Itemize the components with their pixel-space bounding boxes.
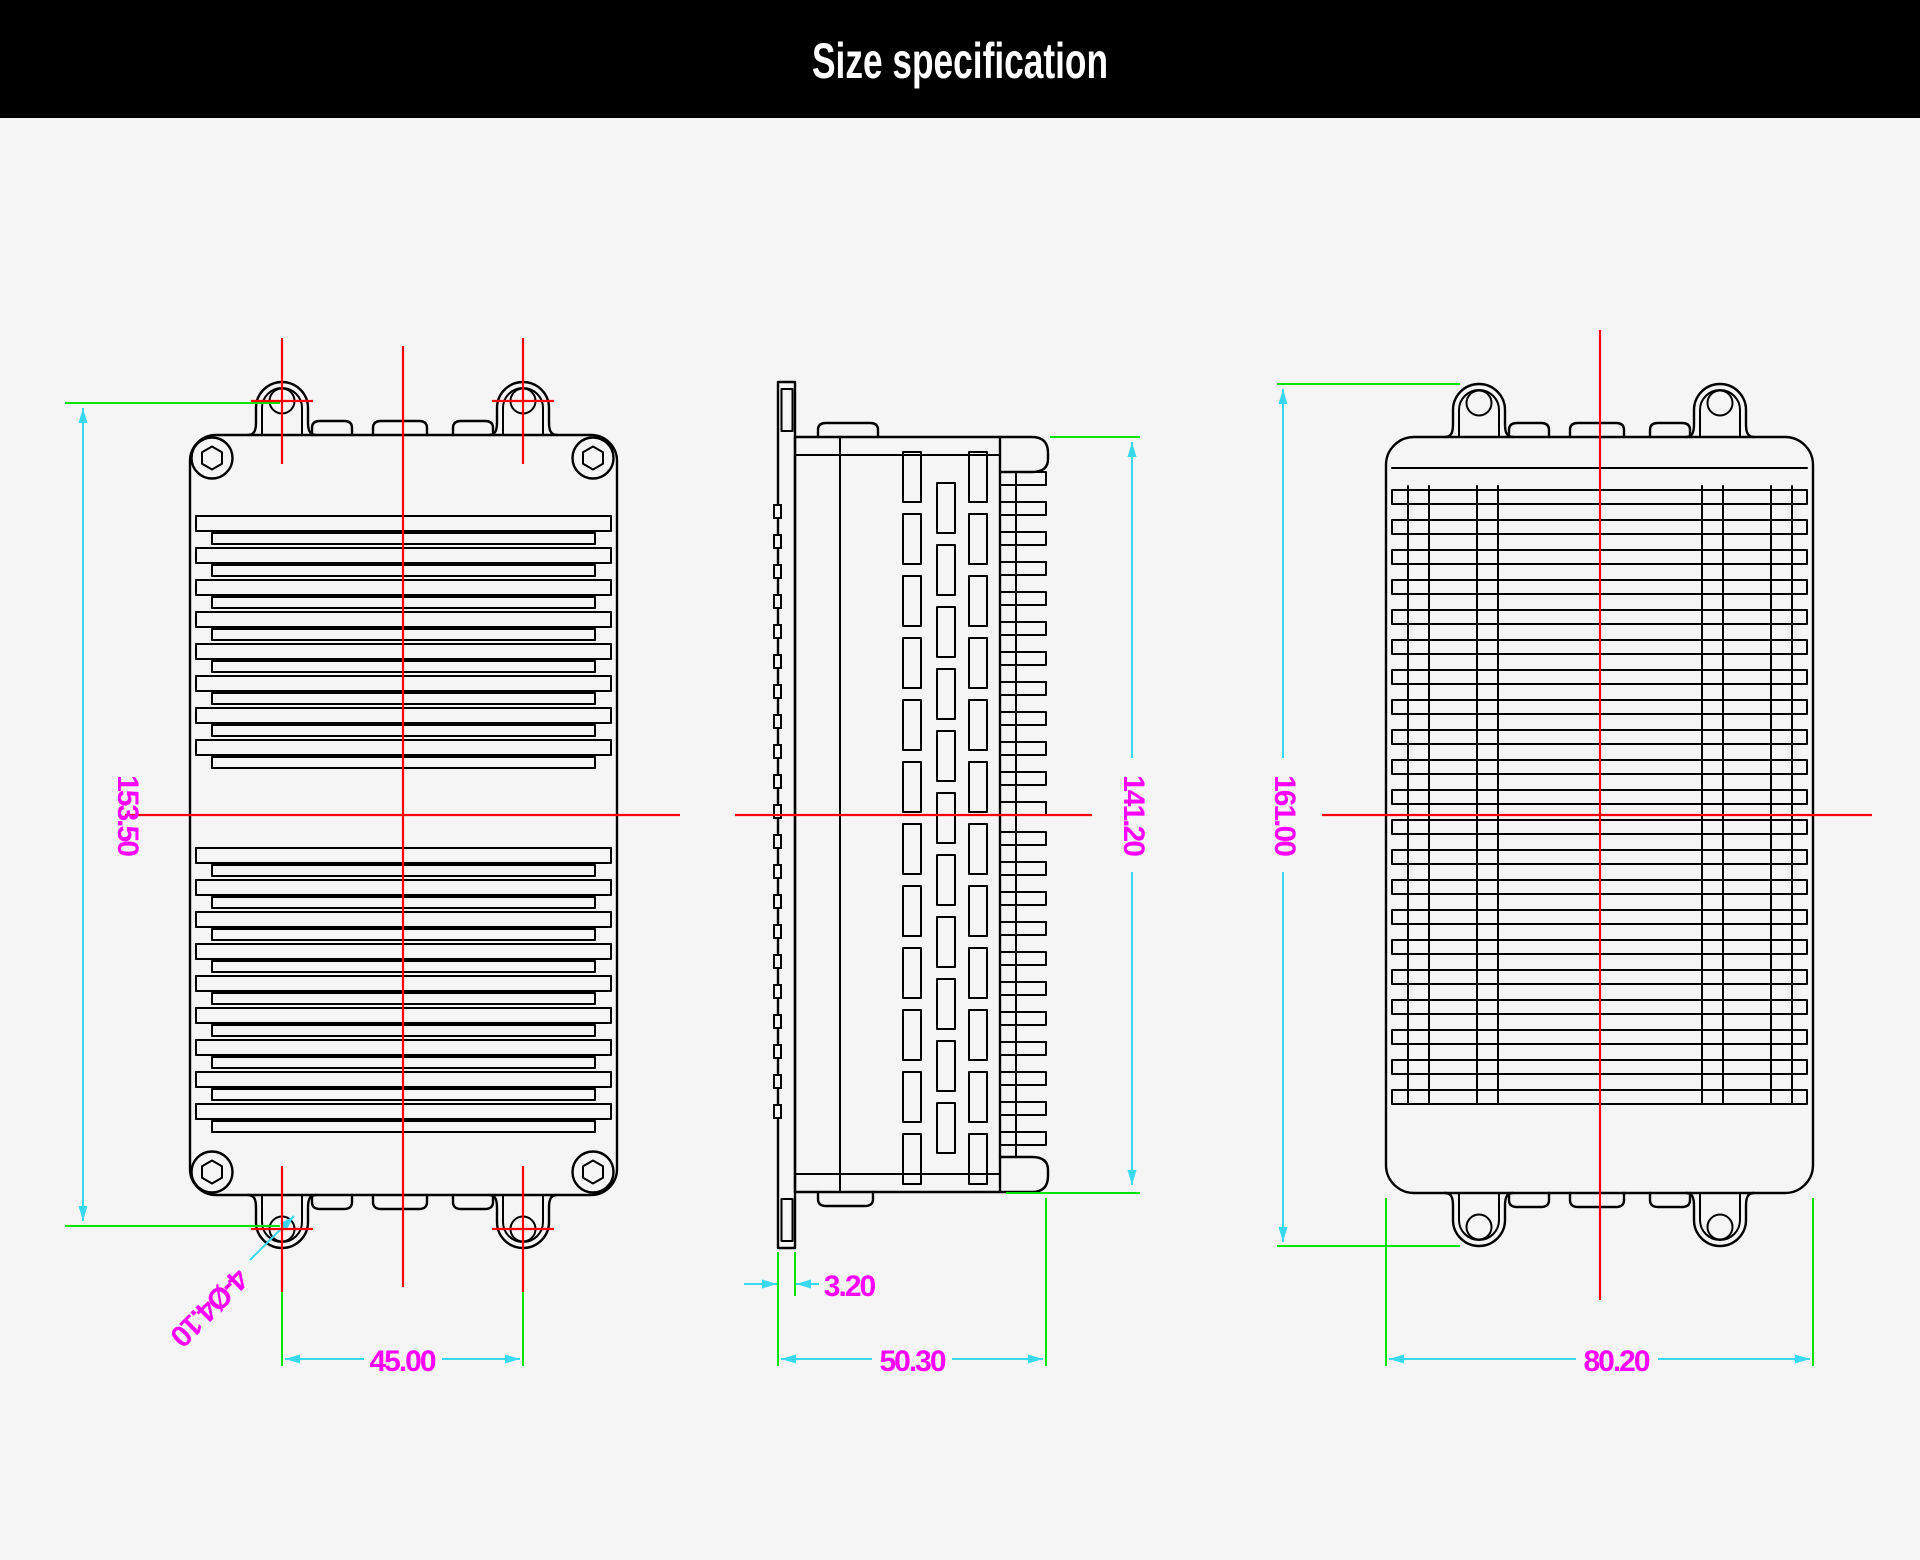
size-specification-page: Size specification bbox=[0, 0, 1920, 1560]
drawing-background bbox=[0, 0, 1920, 1560]
dim-side-flange-thickness: 3.20 bbox=[824, 1270, 876, 1303]
dim-side-depth: 50.30 bbox=[879, 1345, 945, 1378]
dim-front-height: 153.50 bbox=[111, 775, 144, 856]
dim-side-height: 141.20 bbox=[1117, 775, 1150, 856]
dim-back-height: 161.00 bbox=[1268, 775, 1301, 856]
dim-back-width: 80.20 bbox=[1583, 1345, 1649, 1378]
header-bar: Size specification bbox=[0, 0, 1920, 118]
technical-drawing-canvas: Size specification bbox=[0, 0, 1920, 1560]
side-view-flange-notches bbox=[774, 505, 781, 1118]
page-title: Size specification bbox=[812, 33, 1108, 89]
dim-front-hole-spacing: 45.00 bbox=[369, 1345, 435, 1378]
